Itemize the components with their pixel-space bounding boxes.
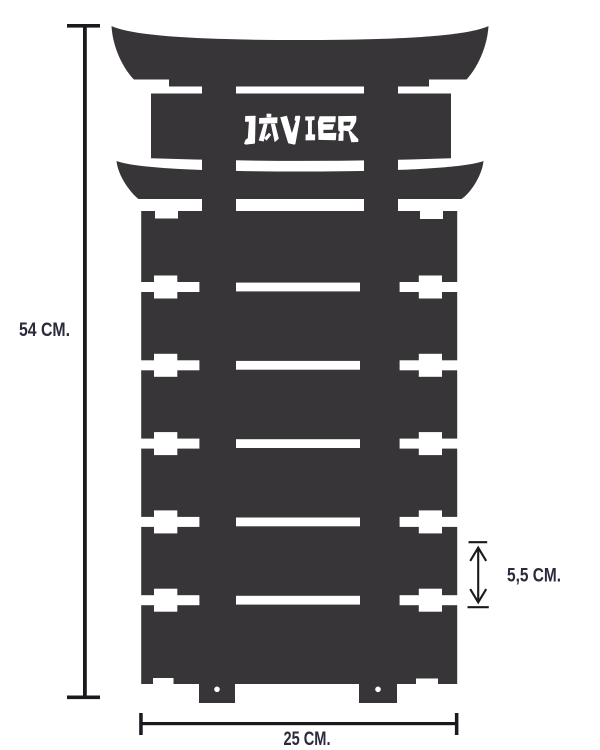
- svg-text:54 CM.: 54 CM.: [19, 319, 70, 341]
- svg-text:5,5 CM.: 5,5 CM.: [507, 565, 561, 587]
- svg-text:25 CM.: 25 CM.: [284, 728, 331, 750]
